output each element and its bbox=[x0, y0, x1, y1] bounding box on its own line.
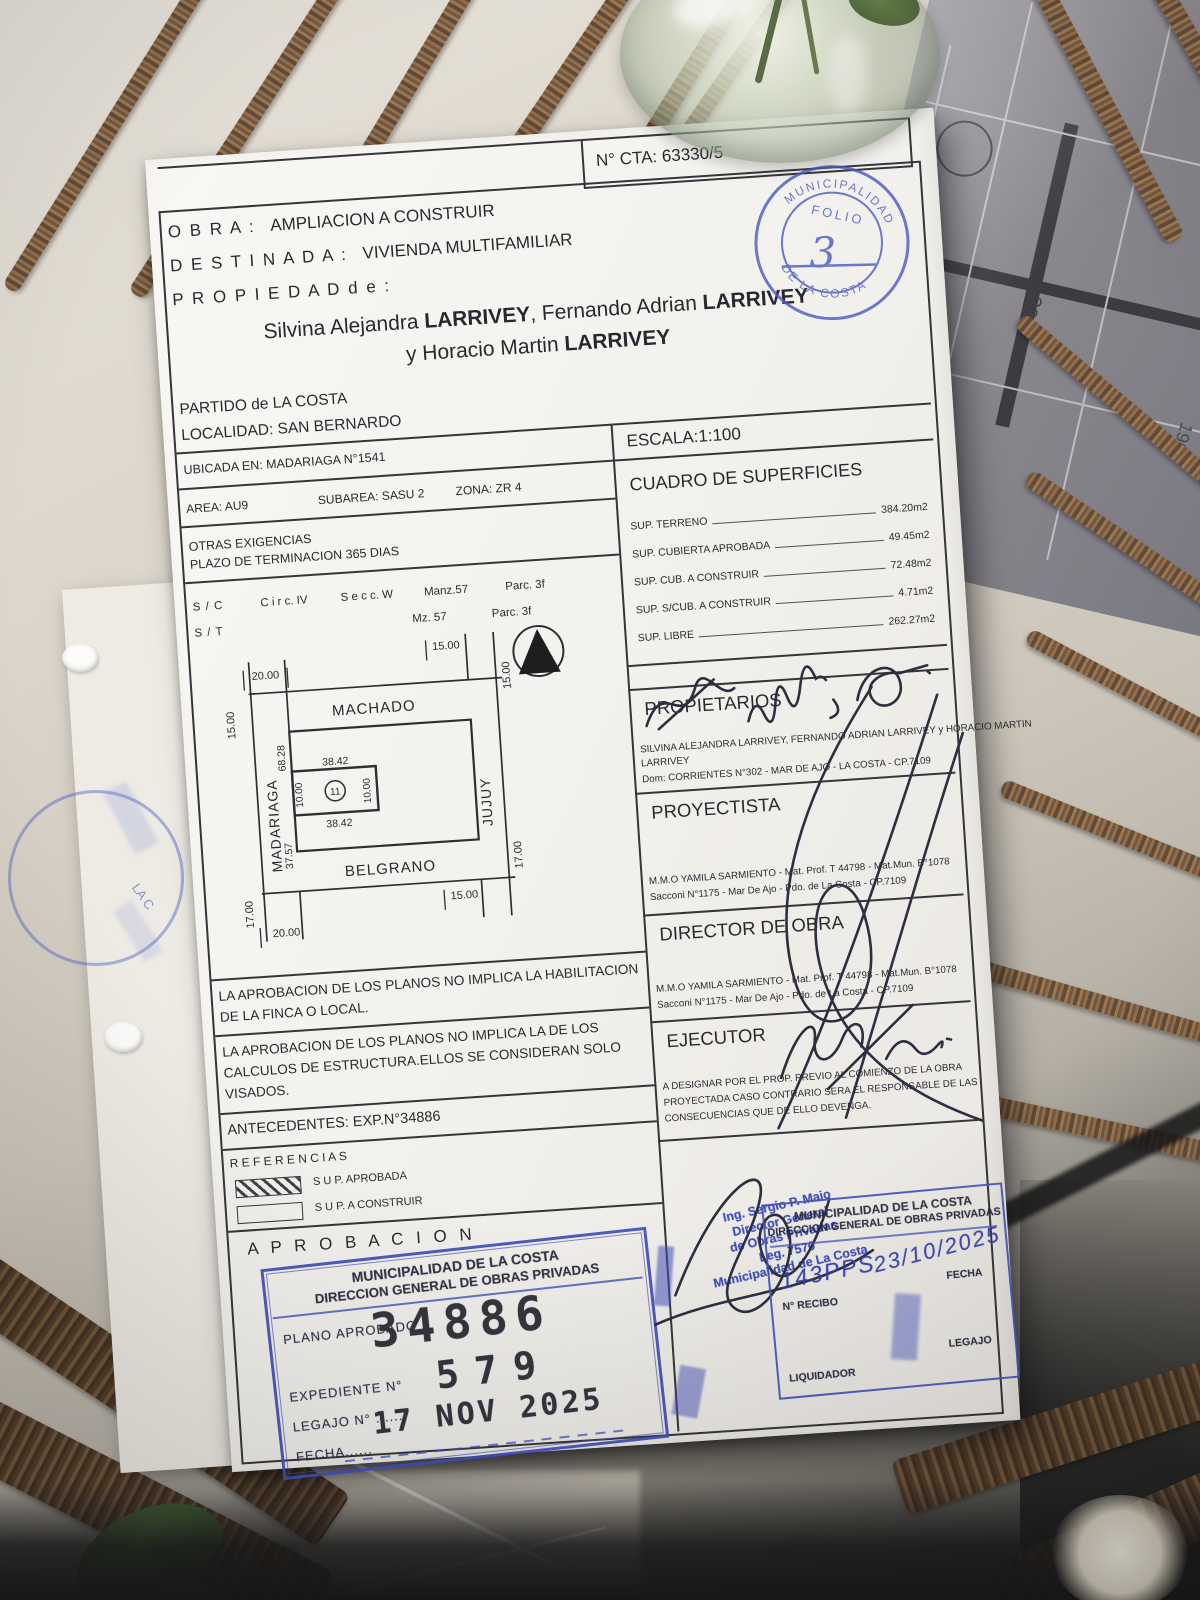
margin-circular-stamp: LA C bbox=[8, 790, 184, 966]
receipt-recibo-label: N° RECIBO bbox=[782, 1296, 838, 1313]
parcel-number: 11 bbox=[330, 786, 342, 798]
dim: 17.00 bbox=[243, 901, 257, 929]
receipt-liquidador-label: LIQUIDADOR bbox=[789, 1367, 856, 1385]
street-madariaga: MADARIAGA bbox=[263, 779, 285, 873]
wicker-spoke bbox=[1024, 628, 1200, 789]
dim: 20.00 bbox=[251, 669, 279, 683]
punch-hole bbox=[104, 1022, 142, 1052]
approval-stamp: MUNICIPALIDAD DE LA COSTA DIRECCION GENE… bbox=[260, 1227, 669, 1480]
wicker-spoke bbox=[999, 779, 1200, 919]
receipt-stamp: MUNICIPALIDAD DE LA COSTA DIRECCION GENE… bbox=[761, 1182, 1020, 1400]
dim: 10.00 bbox=[294, 782, 307, 808]
dim: 38.42 bbox=[326, 817, 353, 831]
street-jujuy: JUJUY bbox=[477, 777, 496, 827]
folio-number-handwritten: 3 bbox=[809, 228, 836, 277]
dim: 37.57 bbox=[283, 842, 297, 869]
sup-value: 4.71m2 bbox=[898, 585, 934, 599]
receipt-recibo-handwritten: 143PPS bbox=[778, 1250, 878, 1295]
receipt-smudge bbox=[891, 1293, 921, 1361]
receipt-fecha-label: FECHA bbox=[946, 1267, 983, 1282]
glass-vase bbox=[620, 0, 940, 163]
dim: 38.42 bbox=[322, 755, 349, 769]
sc-label: S / C bbox=[192, 600, 223, 614]
folio-stamp: MUNICIPALIDAD DE LA COSTA FOLIO 3 bbox=[732, 143, 932, 343]
vase-highlight bbox=[828, 35, 868, 115]
punch-hole bbox=[62, 644, 98, 672]
dark-glass-area bbox=[0, 1480, 1200, 1600]
dim: 20.00 bbox=[272, 926, 300, 940]
dim: 15.00 bbox=[432, 639, 460, 653]
folio-label: FOLIO bbox=[810, 202, 866, 228]
dim: 15.00 bbox=[500, 661, 514, 689]
dim: 68.28 bbox=[275, 745, 289, 772]
lamp-glow bbox=[1050, 1495, 1190, 1600]
street-machado: MACHADO bbox=[332, 697, 417, 720]
dim: 17.00 bbox=[512, 841, 526, 869]
document-sheet: N° CTA: 63330/5 MUNICIPALIDAD DE LA COST… bbox=[145, 108, 1020, 1472]
approval-fecha-label: FECHA...... bbox=[295, 1441, 373, 1464]
photo-scene: 250 230 190 LA C N° CTA: 63330/5 bbox=[0, 0, 1200, 1600]
street-belgrano: BELGRANO bbox=[344, 857, 436, 880]
dim: 15.00 bbox=[225, 711, 239, 739]
approval-expediente-label: EXPEDIENTE N° bbox=[289, 1378, 404, 1405]
north-arrow bbox=[516, 628, 561, 675]
dim: 15.00 bbox=[450, 889, 478, 903]
site-plan: 11 MACHADO BELGRANO MADARIAGA JUJUY 20.0… bbox=[197, 608, 634, 975]
receipt-legajo-label: LEGAJO bbox=[948, 1334, 992, 1350]
ejecutor-signature bbox=[763, 994, 988, 1098]
dim: 10.00 bbox=[361, 777, 374, 803]
